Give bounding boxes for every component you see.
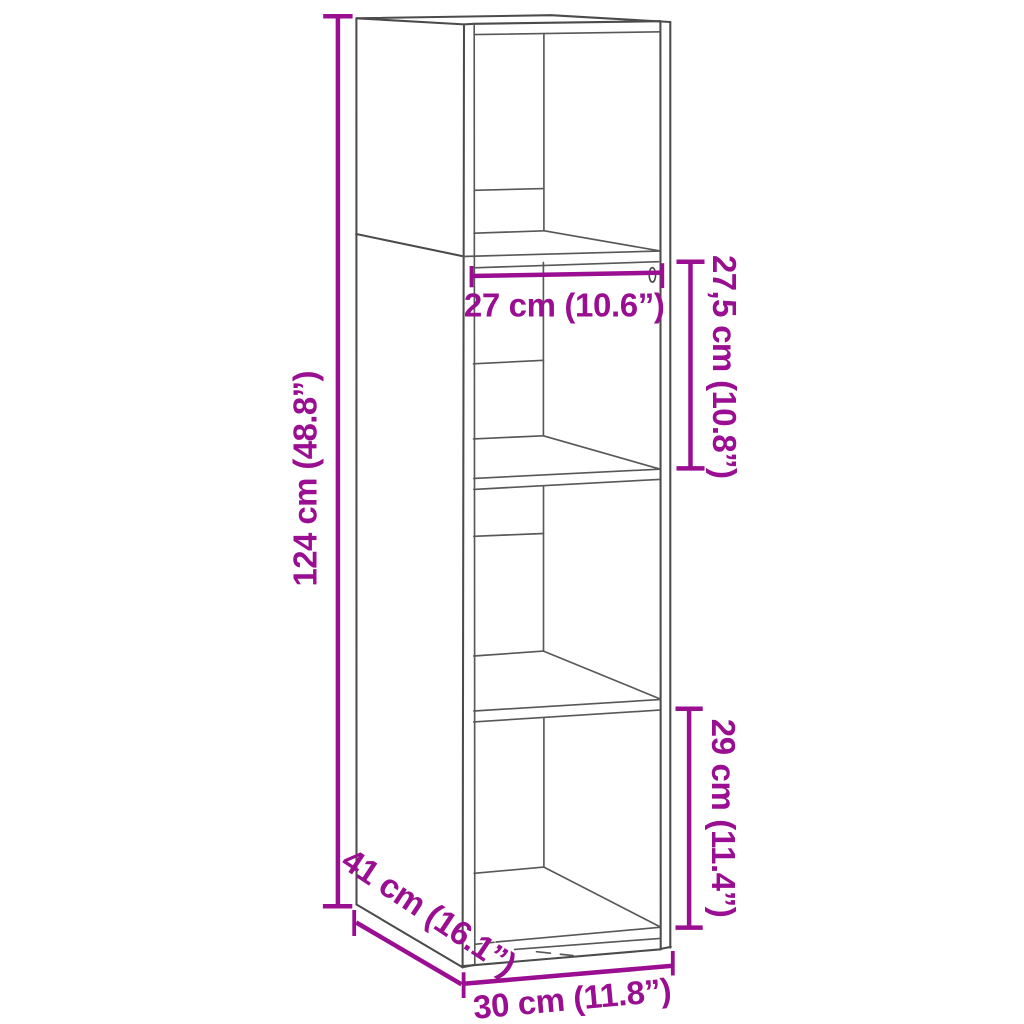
svg-text:27,5 cm (10.8”): 27,5 cm (10.8”) xyxy=(706,255,743,479)
svg-text:27 cm (10.6”): 27 cm (10.6”) xyxy=(464,287,665,324)
svg-text:29 cm (11.4”): 29 cm (11.4”) xyxy=(705,719,742,918)
svg-text:124 cm (48.8”): 124 cm (48.8”) xyxy=(287,371,324,587)
